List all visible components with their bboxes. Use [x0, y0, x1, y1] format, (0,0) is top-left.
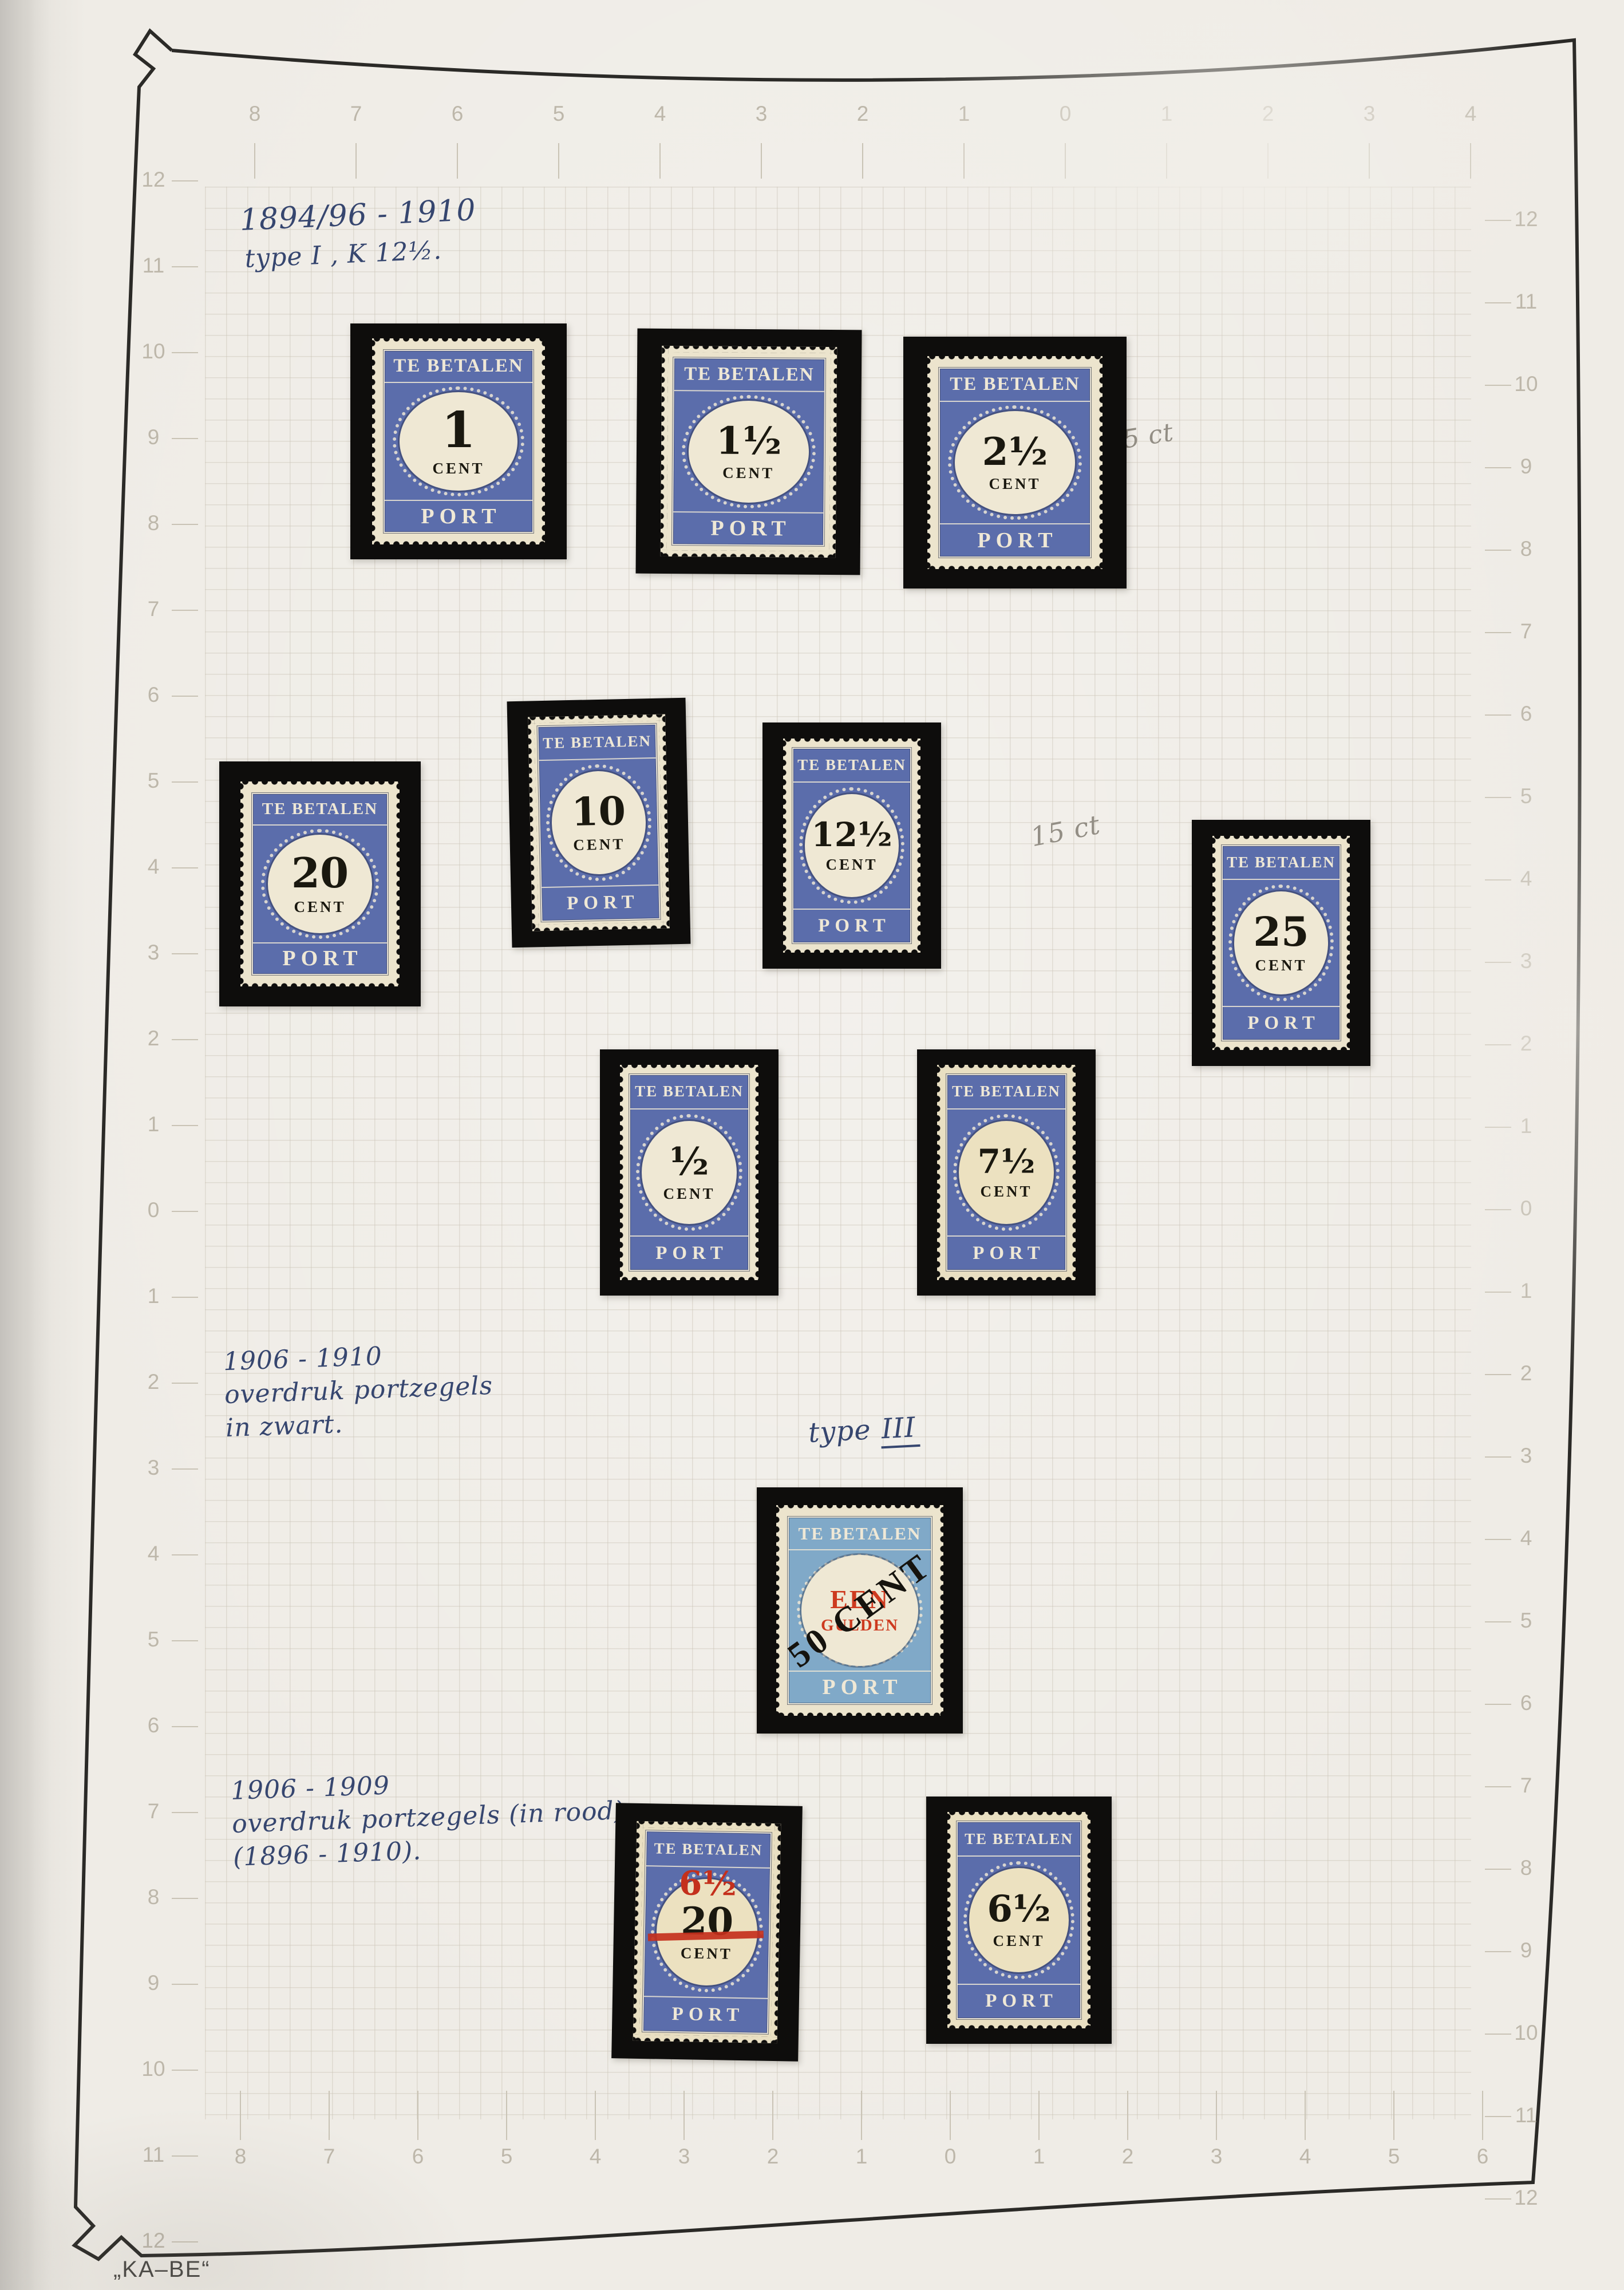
value-oval: 7½ CENT [959, 1121, 1054, 1224]
stamp-center: 1½ CENT [673, 391, 824, 512]
stamp-50-cent-overprint-gulden: TE BETALEN EEN GULDEN PORT 50 CENT [776, 1505, 943, 1716]
stamp-unit: CENT [722, 464, 775, 482]
ruler-number: 3 [1211, 2145, 1223, 2169]
ruler-number: 11 [143, 2143, 164, 2167]
ruler-number: 9 [148, 425, 160, 449]
ruler-tick [172, 438, 198, 439]
ruler-number: 6 [148, 683, 160, 707]
ruler-number: 8 [148, 1885, 160, 1909]
ruler-number: 7 [1520, 1774, 1532, 1798]
ruler-tick [1038, 2091, 1040, 2140]
ruler-number: 2 [1122, 2145, 1134, 2169]
stamp-value: 20 [291, 852, 349, 894]
ruler-tick [1485, 1621, 1511, 1622]
ruler-number: 12 [141, 2229, 165, 2253]
stamp-mount: TE BETALEN 20 CENT PORT 6½ [611, 1803, 803, 2062]
stamp-footer: PORT [1223, 1006, 1339, 1040]
ruler-tick [761, 143, 762, 179]
ruler-tick [172, 2155, 198, 2157]
ruler-number: 3 [756, 102, 768, 126]
ruler-number: 7 [148, 597, 160, 621]
stamp-7half-cent: TE BETALEN 7½ CENT PORT [937, 1065, 1076, 1280]
ruler-tick [950, 2091, 951, 2140]
stamp-unit: CENT [825, 856, 878, 874]
ruler-tick [1485, 1869, 1511, 1870]
value-oval: 25 CENT [1234, 891, 1328, 994]
stamp-frame: TE BETALEN 1 CENT PORT [384, 350, 534, 533]
ruler-tick [172, 2241, 198, 2242]
ruler-tick [683, 2091, 685, 2140]
ruler-number: 0 [1060, 102, 1072, 126]
ruler-number: 0 [945, 2145, 957, 2169]
ruler-number: 5 [553, 102, 565, 126]
ruler-tick [172, 1984, 198, 1985]
ruler-tick [1485, 714, 1511, 716]
overprint-50-cent: 50 CENT [730, 1476, 990, 1744]
stamp-mount: TE BETALEN 7½ CENT PORT [917, 1049, 1096, 1296]
stamp-center: 6½ CENT [958, 1857, 1080, 1984]
stamp-frame: TE BETALEN 20 CENT PORT [252, 793, 388, 975]
stamp-header: TE BETALEN [947, 1075, 1065, 1110]
ruler-tick [172, 867, 198, 868]
ruler-tick [172, 1383, 198, 1384]
stamp-mount: TE BETALEN EEN GULDEN PORT 50 CENT [757, 1487, 963, 1734]
ruler-tick [172, 610, 198, 611]
ruler-number: 9 [1520, 455, 1532, 479]
ruler-number: 4 [1520, 867, 1532, 891]
stamp-value: 1 [441, 406, 476, 455]
stamp-header: TE BETALEN [793, 749, 910, 783]
stamp-center: 1 CENT [385, 383, 532, 500]
stamp-header: TE BETALEN [538, 725, 655, 761]
ruler-number: 4 [148, 1542, 160, 1566]
value-oval: 1½ CENT [688, 400, 809, 503]
stamp-6half-on-20-cent: TE BETALEN 20 CENT PORT 6½ [633, 1821, 781, 2043]
ruler-number: 4 [148, 855, 160, 879]
value-oval: 1 CENT [400, 392, 517, 491]
stamp-value: 7½ [978, 1145, 1036, 1178]
ruler-number: 6 [1520, 1691, 1532, 1715]
ruler-tick [1485, 467, 1511, 468]
ruler-tick [172, 2070, 198, 2071]
stamp-mount: TE BETALEN 10 CENT PORT [507, 698, 691, 947]
ruler-tick [1485, 632, 1511, 633]
stamp-center: 7½ CENT [947, 1110, 1065, 1235]
stamp-footer: PORT [542, 884, 659, 921]
ruler-tick [1369, 143, 1370, 179]
ruler-tick [1482, 2091, 1483, 2140]
stamp-12half-cent: TE BETALEN 12½ CENT PORT [783, 739, 920, 953]
ruler-tick [1127, 2091, 1128, 2140]
ruler-number: 4 [1299, 2145, 1311, 2169]
stamp-value: 12½ [811, 818, 892, 851]
ruler-number: 7 [148, 1799, 160, 1823]
stamp-frame: TE BETALEN 7½ CENT PORT [946, 1074, 1066, 1271]
ruler-tick [172, 1125, 198, 1126]
annotation-text: type [808, 1414, 882, 1450]
ruler-tick [417, 2091, 418, 2140]
stamp-mount: TE BETALEN 12½ CENT PORT [762, 722, 941, 969]
stamp-footer: PORT [793, 909, 910, 942]
stamp-footer: PORT [385, 500, 532, 532]
ruler-tick [1485, 1456, 1511, 1458]
ruler-tick [172, 352, 198, 353]
stamp-mount: TE BETALEN 1½ CENT PORT [636, 329, 862, 575]
ruler-number: 11 [1515, 290, 1537, 314]
ruler-number: 9 [1520, 1938, 1532, 1963]
stamp-unit: CENT [663, 1185, 715, 1203]
ruler-tick [1485, 962, 1511, 963]
ruler-tick [1485, 385, 1511, 386]
ruler-number: 1 [148, 1112, 160, 1136]
ruler-tick [172, 1554, 198, 1555]
ruler-number: 2 [1262, 102, 1274, 126]
ruler-tick [1485, 2198, 1511, 2200]
stamp-frame: TE BETALEN 1½ CENT PORT [672, 357, 825, 546]
annotation-period-1906-zwart: 1906 - 1910 overdruk portzegels in zwart… [223, 1336, 495, 1445]
value-oval: 2½ CENT [955, 411, 1075, 515]
ruler-tick [1485, 1951, 1511, 1952]
ruler-tick [1065, 143, 1066, 179]
stamp-frame: TE BETALEN ½ CENT PORT [629, 1074, 749, 1271]
ruler-tick [1393, 2091, 1394, 2140]
stamp-header: TE BETALEN [940, 369, 1090, 402]
ruler-tick [862, 143, 863, 179]
ruler-tick [1485, 797, 1511, 798]
ruler-tick [861, 2091, 862, 2140]
stamp-mount: TE BETALEN 25 CENT PORT [1192, 820, 1370, 1066]
ruler-number: 6 [1520, 702, 1532, 726]
stamp-value: 25 [1253, 912, 1309, 952]
stamp-center: ½ CENT [630, 1110, 748, 1235]
ruler-tick [329, 2091, 330, 2140]
stamp-10-cent: TE BETALEN 10 CENT PORT [528, 714, 670, 931]
ruler-number: 3 [148, 941, 160, 965]
ruler-tick [1485, 1374, 1511, 1375]
ruler-tick [506, 2091, 507, 2140]
ruler-number: 2 [148, 1370, 160, 1394]
ruler-number: 10 [1514, 372, 1538, 396]
value-oval: 6½ CENT [969, 1868, 1069, 1972]
ruler-tick [172, 696, 198, 697]
ruler-tick [172, 1468, 198, 1470]
publisher-mark: „KA–BE“ [113, 2257, 211, 2283]
ruler-number: 4 [654, 102, 666, 126]
ruler-number: 12 [141, 168, 165, 192]
stamp-footer: PORT [643, 1996, 768, 2033]
stamp-unit: CENT [294, 898, 346, 916]
ruler-number: 3 [148, 1456, 160, 1480]
stamp-20-cent: TE BETALEN 20 CENT PORT [240, 781, 400, 986]
ruler-tick [172, 953, 198, 954]
stamp-value: 10 [571, 792, 626, 832]
annotation-period-1906-rood: 1906 - 1909 overdruk portzegels (in rood… [230, 1761, 626, 1874]
annotation-roman-numeral: III [879, 1411, 920, 1448]
ruler-number: 11 [143, 254, 164, 278]
ruler-tick [1485, 302, 1511, 303]
stamp-mount: TE BETALEN 20 CENT PORT [219, 761, 421, 1006]
ruler-number: 1 [958, 102, 970, 126]
ruler-number: 5 [1520, 784, 1532, 808]
stamp-center: 2½ CENT [940, 402, 1090, 524]
ruler-number: 9 [148, 1971, 160, 1995]
stamp-footer: PORT [947, 1235, 1065, 1270]
stamp-25-cent: TE BETALEN 25 CENT PORT [1212, 836, 1350, 1050]
ruler-tick [172, 1812, 198, 1813]
ruler-number: 6 [148, 1713, 160, 1738]
overprint-6half-red: 6½ [635, 1863, 780, 1904]
ruler-tick [172, 1039, 198, 1040]
ruler-number: 8 [148, 511, 160, 535]
stamp-header: TE BETALEN [958, 1822, 1080, 1857]
stamp-half-cent: TE BETALEN ½ CENT PORT [620, 1065, 758, 1280]
ruler-number: 8 [235, 2145, 247, 2169]
annotation-period-1894: 1894/96 - 1910 type I , K 12½. [239, 193, 479, 274]
stamp-unit: CENT [681, 1944, 733, 1963]
stamp-value: 6½ [987, 1891, 1050, 1928]
value-oval: 20 CENT [268, 835, 372, 933]
stamp-header: TE BETALEN [674, 358, 824, 392]
stamp-2half-cent: TE BETALEN 2½ CENT PORT [927, 356, 1103, 569]
stamp-footer: PORT [253, 942, 387, 974]
ruler-number: 2 [1520, 1361, 1532, 1385]
ruler-number: 1 [1520, 1114, 1532, 1138]
ruler-number: 7 [1520, 619, 1532, 643]
ruler-tick [172, 1726, 198, 1727]
ruler-tick [659, 143, 661, 179]
stamp-unit: CENT [989, 475, 1041, 493]
value-oval: 12½ CENT [805, 794, 899, 897]
ruler-number: 3 [678, 2145, 690, 2169]
stamp-mount: TE BETALEN 1 CENT PORT [350, 323, 567, 559]
stamp-mount: TE BETALEN ½ CENT PORT [600, 1049, 779, 1296]
stamp-frame: TE BETALEN 6½ CENT PORT [957, 1821, 1081, 2019]
stamp-unit: CENT [993, 1932, 1045, 1950]
stamp-frame: TE BETALEN 25 CENT PORT [1222, 845, 1341, 1041]
ruler-tick [1485, 879, 1511, 881]
stamp-header: TE BETALEN [253, 794, 387, 826]
album-page: 1894/96 - 1910 type I , K 12½. 5 ct 15 c… [0, 0, 1624, 2290]
ruler-tick [1485, 1539, 1511, 1540]
ruler-number: 8 [1520, 537, 1532, 561]
stamp-mount: TE BETALEN 2½ CENT PORT [903, 337, 1127, 589]
ruler-number: 3 [1520, 1444, 1532, 1468]
ruler-number: 1 [1033, 2145, 1045, 2169]
ruler-tick [595, 2091, 596, 2140]
ruler-tick [1470, 143, 1471, 179]
ruler-number: 7 [350, 102, 362, 126]
ruler-number: 10 [141, 339, 165, 364]
ruler-tick [772, 2091, 773, 2140]
ruler-tick [1485, 1127, 1511, 1128]
ruler-number: 12 [1514, 2186, 1538, 2210]
ruler-number: 10 [1514, 2021, 1538, 2045]
ruler-tick [172, 1297, 198, 1298]
stamp-value: ½ [670, 1143, 709, 1180]
ruler-number: 4 [590, 2145, 602, 2169]
ruler-tick [240, 2091, 241, 2140]
stamp-header: TE BETALEN [1223, 846, 1339, 880]
ruler-number: 1 [856, 2145, 868, 2169]
ruler-number: 12 [1514, 207, 1538, 231]
ruler-tick [1267, 143, 1269, 179]
ruler-tick [1485, 1044, 1511, 1045]
ruler-number: 2 [767, 2145, 779, 2169]
ruler-number: 6 [412, 2145, 424, 2169]
stamp-mount: TE BETALEN 6½ CENT PORT [926, 1797, 1112, 2044]
ruler-number: 2 [1520, 1032, 1532, 1056]
stamp-unit: CENT [980, 1183, 1032, 1201]
ruler-tick [1485, 1704, 1511, 1705]
stamp-frame: TE BETALEN 2½ CENT PORT [939, 368, 1091, 558]
ruler-tick [172, 266, 198, 267]
stamp-center: 25 CENT [1223, 880, 1339, 1005]
ruler-number: 1 [1161, 102, 1173, 126]
ruler-number: 0 [148, 1198, 160, 1222]
stamp-1-cent: TE BETALEN 1 CENT PORT [372, 338, 545, 544]
ruler-number: 2 [857, 102, 869, 126]
ruler-number: 5 [148, 769, 160, 793]
stamp-center: 20 CENT [253, 826, 387, 942]
ruler-number: 7 [323, 2145, 335, 2169]
stamp-value: 2½ [982, 433, 1048, 471]
ruler-tick [172, 1211, 198, 1212]
ruler-tick [1485, 1292, 1511, 1293]
ruler-number: 3 [1520, 949, 1532, 973]
ruler-number: 5 [148, 1628, 160, 1652]
ruler-number: 5 [1520, 1609, 1532, 1633]
stamp-unit: CENT [432, 460, 484, 477]
ruler-number: 8 [1520, 1856, 1532, 1880]
ruler-tick [172, 1640, 198, 1641]
ruler-tick [963, 143, 965, 179]
ruler-tick [172, 781, 198, 783]
ruler-tick [1166, 143, 1167, 179]
annotation-type-iii: type III [808, 1411, 920, 1449]
ruler-number: 0 [1520, 1197, 1532, 1221]
value-oval: ½ CENT [642, 1121, 737, 1224]
ruler-number: 11 [1515, 2103, 1537, 2127]
ruler-number: 2 [148, 1026, 160, 1051]
ruler-number: 1 [148, 1284, 160, 1308]
ruler-tick [558, 143, 559, 179]
ruler-tick [1485, 2034, 1511, 2035]
ruler-tick [1485, 1786, 1511, 1787]
ruler-tick [1305, 2091, 1306, 2140]
ruler-number: 4 [1465, 102, 1477, 126]
ruler-tick [1485, 2116, 1511, 2117]
stamp-footer: PORT [630, 1235, 748, 1270]
stamp-footer: PORT [940, 523, 1090, 556]
ruler-tick [1216, 2091, 1217, 2140]
stamp-value: 1½ [716, 421, 782, 460]
stamp-frame: TE BETALEN 10 CENT PORT [537, 724, 660, 922]
ruler-number: 3 [1364, 102, 1376, 126]
ruler-tick [355, 143, 357, 179]
stamp-1half-cent: TE BETALEN 1½ CENT PORT [661, 346, 837, 558]
ruler-number: 4 [1520, 1526, 1532, 1550]
ruler-tick [172, 180, 198, 181]
stamp-6half-cent: TE BETALEN 6½ CENT PORT [947, 1812, 1090, 2028]
ruler-tick [1485, 550, 1511, 551]
stamp-footer: PORT [958, 1984, 1080, 2018]
ruler-number: 6 [452, 102, 464, 126]
ruler-number: 8 [249, 102, 261, 126]
stamp-center: 10 CENT [539, 759, 659, 886]
ruler-number: 10 [141, 2057, 165, 2081]
ruler-number: 5 [1388, 2145, 1400, 2169]
ruler-tick [172, 1898, 198, 1899]
ruler-tick [172, 524, 198, 525]
ruler-number: 5 [501, 2145, 513, 2169]
ruler-tick [457, 143, 458, 179]
ruler-tick [1485, 1209, 1511, 1210]
stamp-header: TE BETALEN [385, 351, 532, 383]
stamp-center: 12½ CENT [793, 783, 910, 908]
ruler-tick [254, 143, 255, 179]
stamp-header: TE BETALEN [630, 1075, 748, 1110]
ruler-tick [1485, 220, 1511, 221]
stamp-unit: CENT [573, 835, 626, 854]
stamp-unit: CENT [1255, 957, 1307, 974]
ruler-number: 1 [1520, 1279, 1532, 1303]
stamp-footer: PORT [673, 511, 823, 545]
ruler-number: 6 [1477, 2145, 1489, 2169]
stamp-frame: TE BETALEN 12½ CENT PORT [792, 748, 911, 943]
